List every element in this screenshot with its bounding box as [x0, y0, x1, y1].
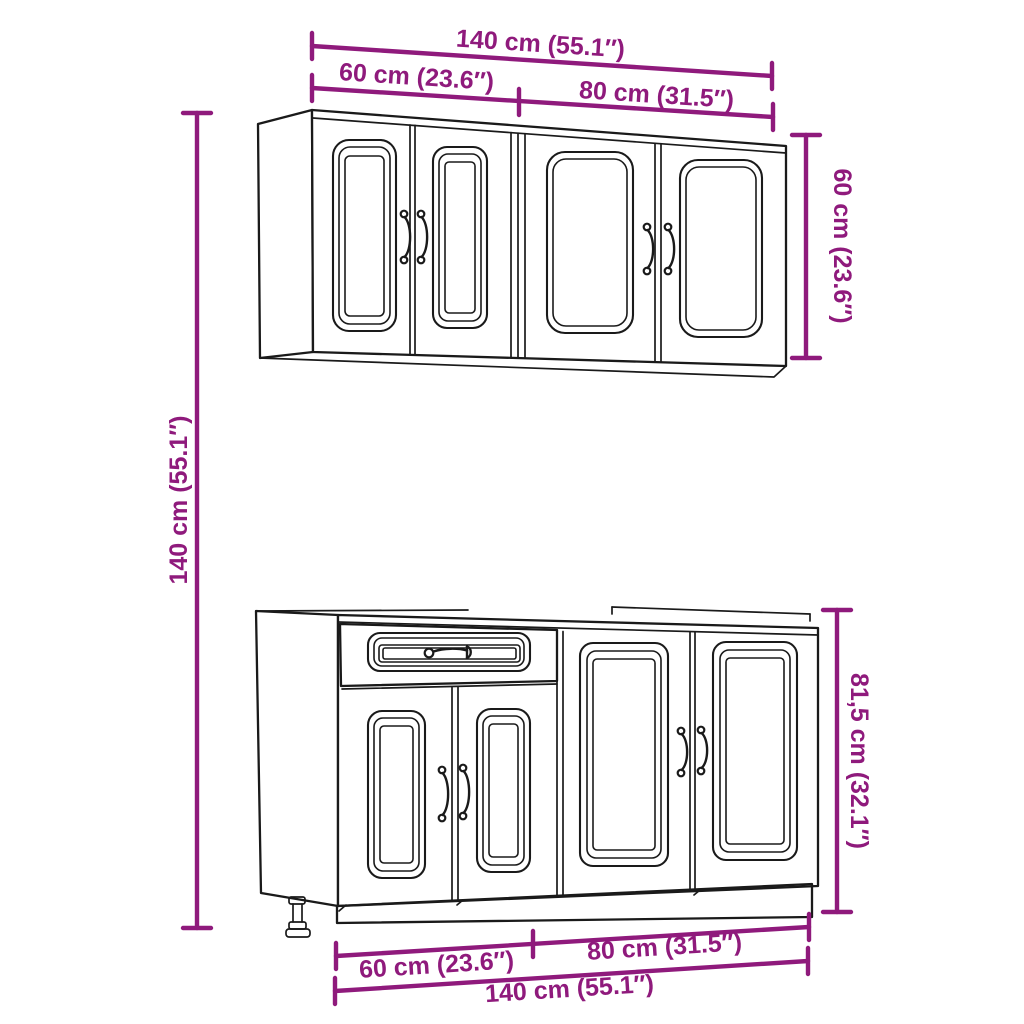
cabinet-drawing-canvas: 140 cm (55.1″) 60 cm (23.6″) 80 cm (31.5… [0, 0, 1024, 1024]
dim-wall-height [792, 135, 820, 358]
wall-cabinet [258, 110, 786, 377]
cabinet-foot [286, 897, 310, 937]
dim-label-wall-height: 60 cm (23.6″) [828, 168, 856, 323]
base-cabinet-side-panel [256, 611, 338, 906]
dim-label-overall-height: 140 cm (55.1″) [165, 415, 193, 584]
countertop-lip [612, 607, 810, 621]
wall-cabinet-side-panel [258, 110, 313, 358]
dim-label-bottom-total-width: 140 cm (55.1″) [484, 970, 654, 1009]
dim-label-base-height: 81,5 cm (32.1″) [845, 673, 873, 849]
product-dimension-diagram: 140 cm (55.1″) 60 cm (23.6″) 80 cm (31.5… [0, 0, 1024, 1024]
dim-label-bottom-right-width: 80 cm (31.5″) [586, 928, 743, 966]
base-cabinet [256, 607, 818, 937]
countertop-back-edge [258, 610, 468, 611]
